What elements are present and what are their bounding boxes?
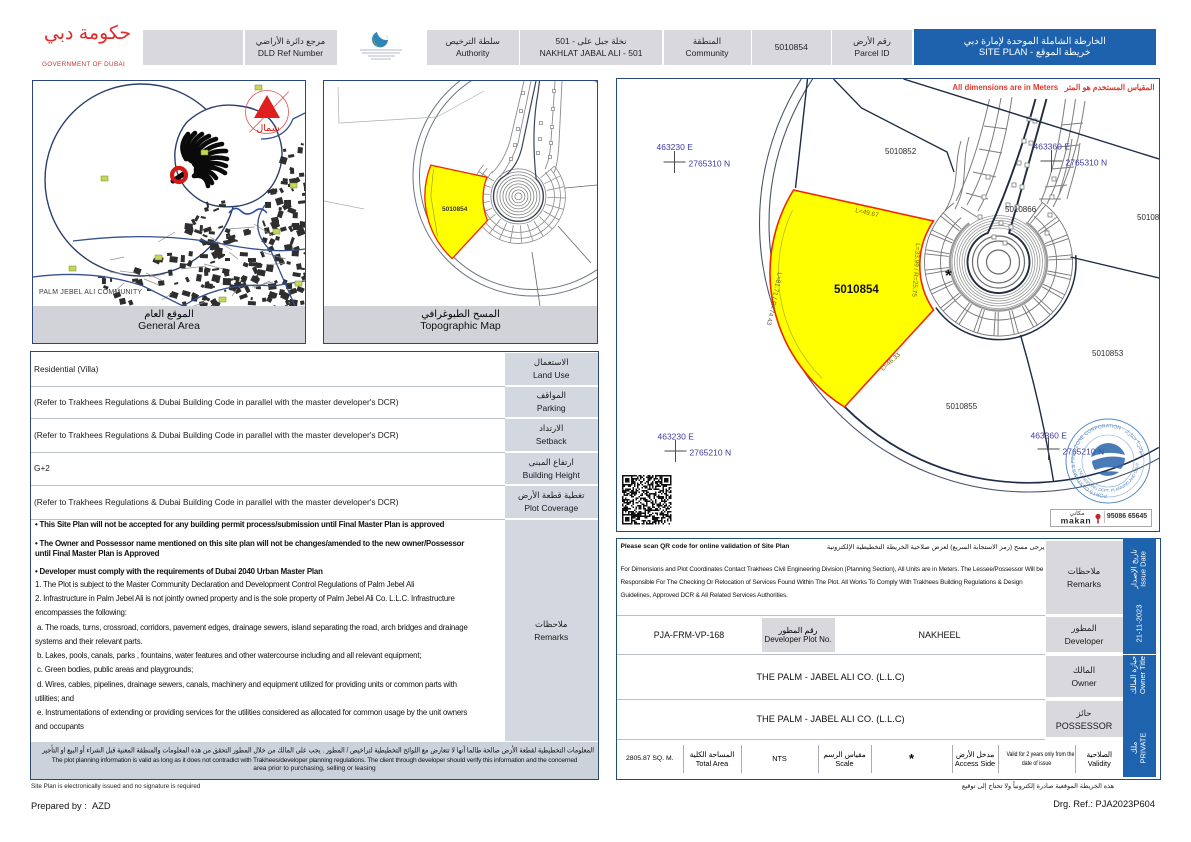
svg-text:2765310 N: 2765310 N <box>688 159 730 169</box>
svg-text:5010867: 5010867 <box>1137 213 1159 222</box>
svg-text:*: * <box>945 266 952 285</box>
svg-text:5010853: 5010853 <box>1092 349 1124 358</box>
svg-text:5010852: 5010852 <box>885 147 917 156</box>
svg-text:5010854: 5010854 <box>834 284 879 296</box>
svg-text:2765210 N: 2765210 N <box>689 448 731 458</box>
svg-text:5010855: 5010855 <box>946 402 978 411</box>
svg-text:463230 E: 463230 E <box>656 142 693 152</box>
svg-text:PALM JEBEL ALI COMMUNITY: PALM JEBEL ALI COMMUNITY <box>39 289 142 296</box>
svg-text:463360 E: 463360 E <box>1030 431 1067 441</box>
svg-text:المعلومات التخطيطية لقطعة الأر: المعلومات التخطيطية لقطعة الأرض صالحة طا… <box>41 745 594 755</box>
svg-text:5010854: 5010854 <box>442 206 468 213</box>
svg-text:463230 E: 463230 E <box>657 432 694 442</box>
svg-text:463360 E: 463360 E <box>1033 142 1070 152</box>
svg-text:5010866: 5010866 <box>1005 205 1037 214</box>
svg-text:شمال: شمال <box>256 123 279 134</box>
svg-text:2765310 N: 2765310 N <box>1065 158 1107 168</box>
svg-text:makan: makan <box>1061 516 1092 526</box>
